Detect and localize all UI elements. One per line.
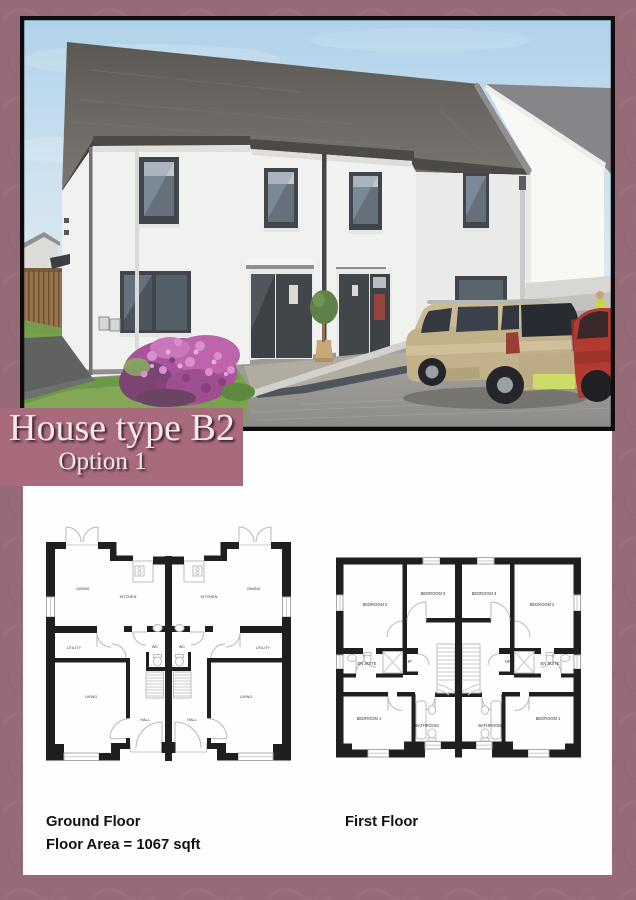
svg-text:UTILITY: UTILITY (256, 646, 271, 650)
svg-text:BEDROOM 2: BEDROOM 2 (363, 602, 388, 607)
svg-text:HALL: HALL (187, 718, 197, 722)
svg-text:DINING: DINING (76, 587, 89, 591)
svg-text:BEDROOM 3: BEDROOM 3 (421, 591, 446, 596)
svg-text:BATHROOM: BATHROOM (478, 723, 502, 728)
svg-text:DINING: DINING (247, 587, 260, 591)
svg-text:EN SUITE: EN SUITE (541, 661, 560, 666)
svg-text:EN SUITE: EN SUITE (358, 661, 377, 666)
svg-text:KITCHEN: KITCHEN (201, 595, 218, 599)
svg-text:BEDROOM 3: BEDROOM 3 (472, 591, 497, 596)
svg-text:BATHROOM: BATHROOM (415, 723, 439, 728)
svg-text:LIVING: LIVING (240, 695, 252, 699)
svg-text:BEDROOM 1: BEDROOM 1 (536, 716, 561, 721)
svg-text:KITCHEN: KITCHEN (120, 595, 137, 599)
svg-text:WC: WC (152, 645, 159, 649)
svg-text:BEDROOM 1: BEDROOM 1 (357, 716, 382, 721)
svg-text:BEDROOM 2: BEDROOM 2 (530, 602, 555, 607)
svg-text:HP: HP (406, 659, 412, 664)
svg-text:LIVING: LIVING (85, 695, 97, 699)
svg-text:HP: HP (505, 659, 511, 664)
svg-text:HALL: HALL (140, 718, 150, 722)
svg-text:WC: WC (179, 645, 186, 649)
svg-text:UTILITY: UTILITY (67, 646, 82, 650)
